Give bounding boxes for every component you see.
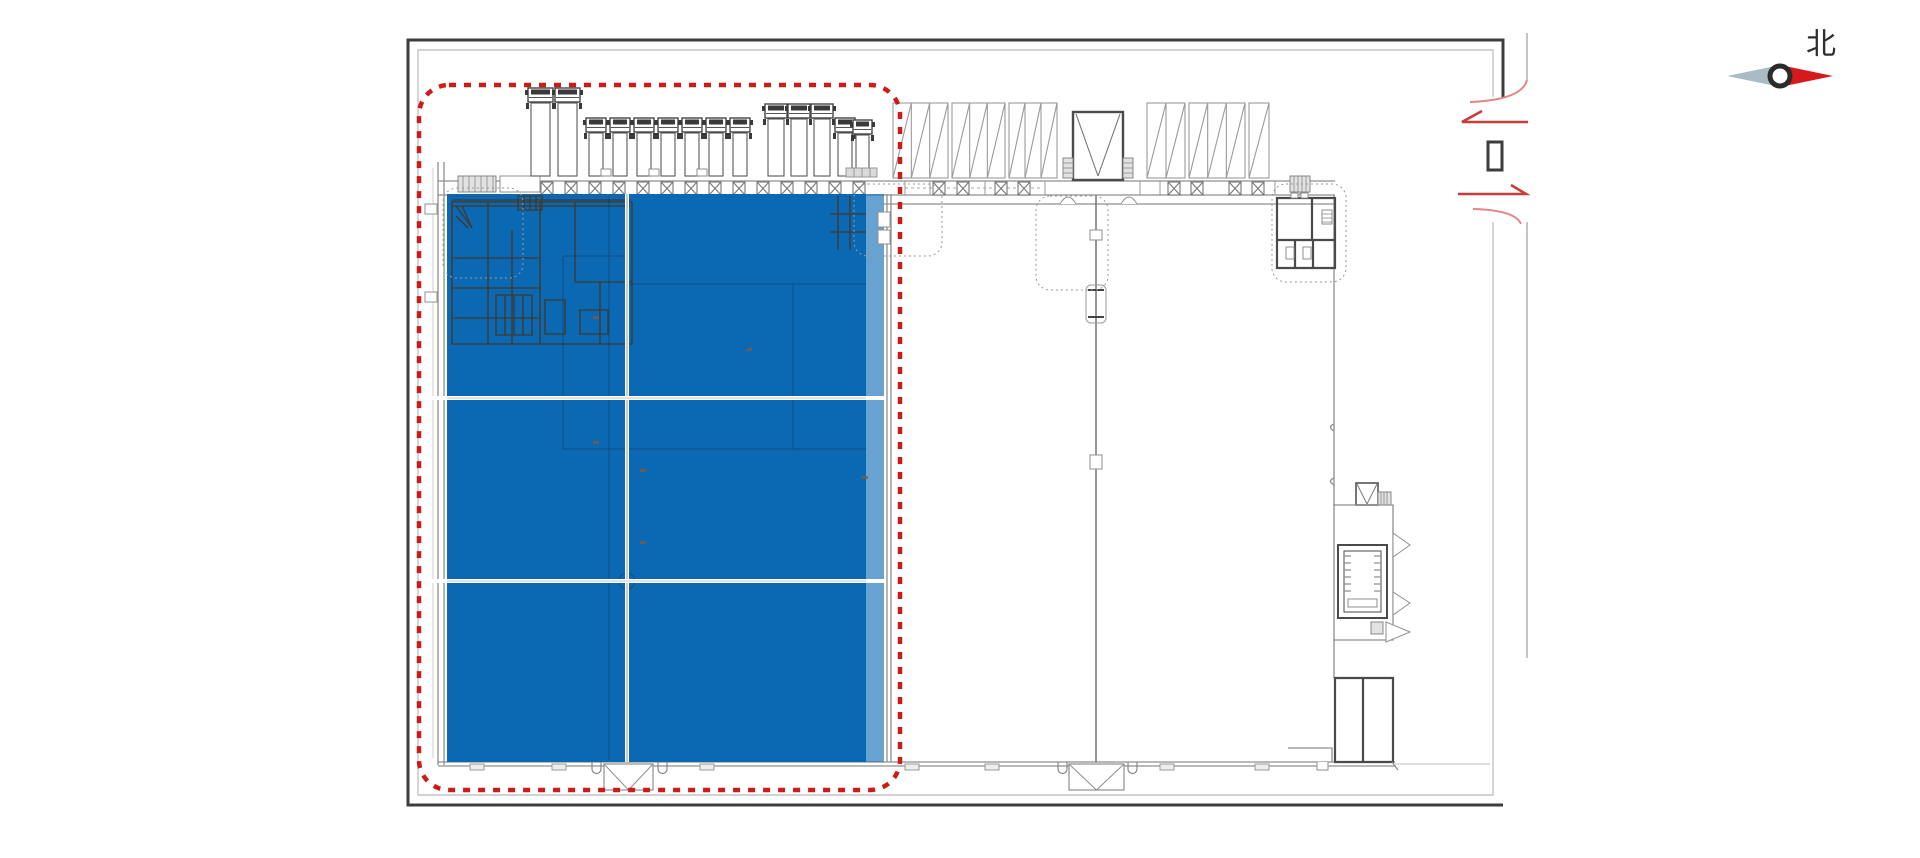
truck-mirror	[655, 120, 658, 125]
truck-trailer	[791, 119, 807, 176]
north-compass: 北	[1727, 27, 1836, 87]
truck-wheel	[809, 119, 812, 125]
truck-wheel	[680, 133, 683, 139]
truck-roof	[856, 122, 869, 127]
truck-wheel	[553, 103, 556, 109]
truck-mirror	[703, 120, 706, 125]
truck-mirror	[583, 120, 586, 125]
truck-roof	[709, 120, 723, 125]
truck-roof	[768, 106, 784, 111]
truck-mirror	[607, 120, 610, 125]
stair-landing	[1348, 599, 1377, 607]
truck-trailer	[814, 119, 830, 176]
door-hook	[1317, 762, 1328, 770]
stair-hatch-block	[458, 176, 496, 192]
truck-mirror	[762, 106, 765, 111]
door-canopy	[604, 764, 653, 790]
truck-roof	[531, 90, 550, 95]
bottom-tick	[1160, 764, 1174, 770]
truck-mirror	[850, 122, 853, 127]
truck-trailer	[661, 133, 675, 176]
truck-trailer	[709, 133, 723, 176]
cad-tick	[640, 469, 646, 472]
truck-wheel	[629, 133, 632, 139]
northeast-rooms	[1277, 176, 1335, 268]
dock-platform	[846, 168, 877, 177]
cad-tick	[593, 441, 599, 444]
truck-roof	[791, 106, 807, 111]
truck-roof	[589, 120, 603, 125]
fixture	[1286, 247, 1294, 259]
divider-box	[1090, 455, 1102, 469]
truck-wheel	[728, 133, 731, 139]
door-wedge	[1386, 622, 1410, 642]
truck-wheel	[656, 133, 659, 139]
truck-wheel	[579, 103, 582, 109]
equipment-enclosure	[1036, 196, 1108, 290]
truck-wheel	[851, 135, 854, 141]
entrance-arrow-in	[1462, 111, 1528, 122]
truck-mirror	[808, 106, 811, 111]
truck-wheel	[833, 133, 836, 139]
annex-hatch	[1371, 622, 1383, 634]
bottom-tick-row	[470, 764, 1269, 770]
annex-step-block	[1378, 492, 1391, 505]
highlight-fill	[447, 194, 866, 762]
west-door-block	[425, 204, 437, 214]
door-hook	[1128, 762, 1137, 774]
cad-tick	[640, 541, 646, 544]
door-hook	[592, 762, 601, 774]
door-swing-bump	[1060, 197, 1076, 204]
truck-wheel	[763, 119, 766, 125]
se-room-walls	[1335, 678, 1393, 762]
truck-trailer	[613, 133, 627, 176]
truck-wheel	[725, 133, 728, 139]
compass-north-label: 北	[1806, 27, 1836, 62]
highlight-fill-light-strip	[866, 194, 884, 762]
truck-wheel	[786, 119, 789, 125]
bottom-tick	[905, 764, 919, 770]
truck-roof	[733, 120, 747, 125]
west-door-block	[425, 292, 437, 302]
dock-box	[500, 176, 540, 192]
truck-mirror	[679, 120, 682, 125]
cad-tick	[746, 348, 752, 351]
se-low-wall	[1288, 748, 1332, 762]
truck-wheel	[526, 103, 529, 109]
entrance-door-swing-top	[1470, 80, 1527, 102]
truck-trailer	[733, 133, 747, 176]
door-wedge	[1393, 533, 1410, 557]
truck-mirror	[750, 120, 753, 125]
truck-row	[525, 88, 875, 176]
door-notch	[1291, 193, 1298, 198]
door-hook	[658, 762, 667, 774]
truck-roof	[685, 120, 699, 125]
truck-roof	[558, 90, 577, 95]
door-canopy	[1069, 764, 1124, 790]
cad-tick	[862, 476, 868, 479]
truck-trailer	[768, 119, 784, 176]
divider-box	[1090, 230, 1102, 240]
southeast-rooms	[1288, 678, 1398, 770]
dock-bumper	[697, 169, 707, 176]
truck-roof	[661, 120, 675, 125]
ramp-canopy	[1063, 112, 1133, 180]
truck-wheel	[677, 133, 680, 139]
east-stair-annex	[1331, 424, 1411, 642]
bottom-tick	[470, 764, 484, 770]
truck-mirror	[832, 120, 835, 125]
bottom-tick	[1255, 764, 1269, 770]
truck-wheel	[871, 135, 874, 141]
site-entrance	[1458, 80, 1528, 224]
truck-wheel	[749, 133, 752, 139]
truck-wheel	[653, 133, 656, 139]
truck-mirror	[872, 122, 875, 127]
truck-mirror	[785, 106, 788, 111]
truck-mirror	[833, 106, 836, 111]
truck-mirror	[580, 90, 583, 95]
truck-wheel	[704, 133, 707, 139]
truck-mirror	[631, 120, 634, 125]
bottom-tick	[552, 764, 566, 770]
fixture	[1303, 247, 1311, 259]
door-notch	[1301, 193, 1308, 198]
truck-roof	[838, 120, 852, 125]
door-wedge	[1393, 592, 1410, 615]
annex-canopy	[1356, 483, 1378, 505]
bottom-tick	[985, 764, 999, 770]
column-grid	[541, 182, 1264, 195]
truck-wheel	[608, 133, 611, 139]
entrance-gate-post	[1488, 142, 1502, 170]
truck-wheel	[605, 133, 608, 139]
truck-roof	[814, 106, 830, 111]
truck-wheel	[584, 133, 587, 139]
entrance-arrow-out	[1458, 185, 1526, 194]
dock-equipment-box	[878, 230, 890, 244]
truck-trailer	[558, 103, 577, 176]
cad-tick	[593, 316, 599, 319]
door-swing-bump	[1121, 197, 1137, 204]
dock-bumper	[601, 169, 611, 176]
bottom-tick	[700, 764, 714, 770]
door-hook	[1058, 762, 1067, 774]
dock-bumper	[649, 169, 659, 176]
truck-mirror	[727, 120, 730, 125]
compass-hub	[1770, 66, 1790, 86]
truck-trailer	[531, 103, 550, 176]
ramp-box	[1073, 112, 1123, 180]
truck-wheel	[632, 133, 635, 139]
truck-wheel	[701, 133, 704, 139]
truck-mirror	[552, 90, 555, 95]
truck-mirror	[525, 90, 528, 95]
entrance-door-swing-bottom	[1473, 209, 1521, 224]
truck-roof	[637, 120, 651, 125]
canopy-group	[604, 764, 1124, 790]
truck-roof	[613, 120, 627, 125]
hook-group	[592, 762, 1137, 774]
dock-equipment-box	[878, 212, 890, 227]
highlight-zone	[447, 194, 891, 762]
floor-plan: 北	[0, 0, 1920, 858]
